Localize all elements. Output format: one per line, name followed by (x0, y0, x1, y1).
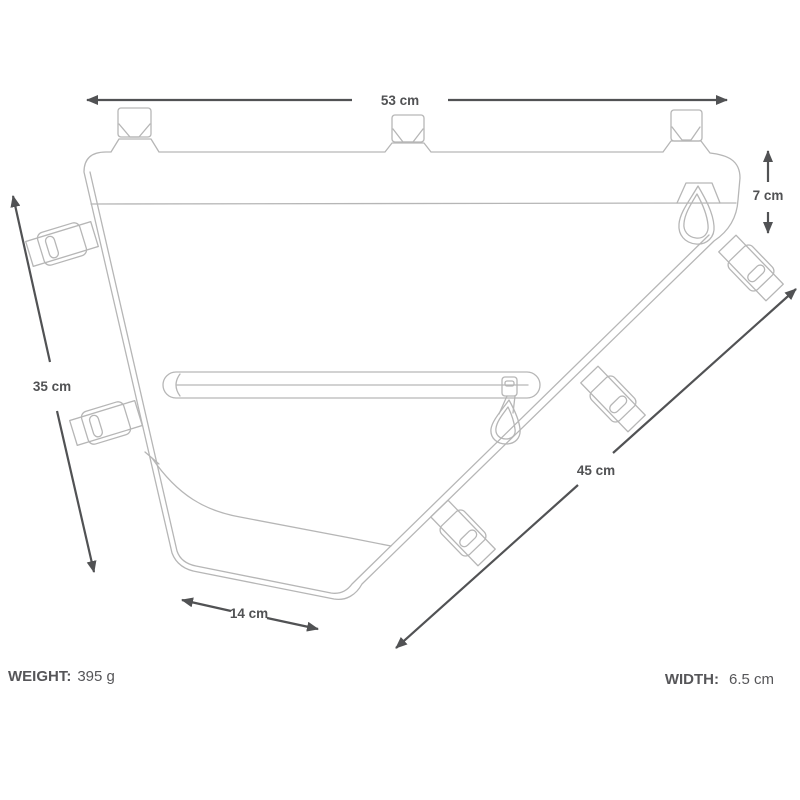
dimension-label-top: 53 cm (381, 93, 419, 108)
zipper-pull-icon (491, 400, 520, 444)
dimension-arrow-diagonal (613, 289, 796, 453)
dimension-label-left: 35 cm (33, 379, 71, 394)
width-value: 6.5 cm (729, 671, 774, 688)
strap-buckle (578, 363, 648, 434)
bag-outline (84, 139, 740, 599)
strap-buckle (716, 232, 786, 303)
weight-label: WEIGHT: (8, 668, 71, 685)
dimension-label-depth: 7 cm (753, 188, 784, 203)
strap-buckle (428, 497, 498, 568)
dimension-labels: 53 cm 35 cm 45 cm 7 cm 14 cm (33, 93, 784, 621)
dimension-label-diagonal: 45 cm (577, 463, 615, 478)
dimension-arrow-bottom (182, 600, 231, 611)
dimension-arrow-left (13, 196, 50, 362)
top-strap-loop (671, 110, 702, 141)
weight-spec: WEIGHT:395 g (8, 668, 115, 685)
diagram-canvas: 53 cm 35 cm 45 cm 7 cm 14 cm WEIGHT:395 … (0, 0, 800, 800)
dimension-label-bottom: 14 cm (230, 606, 268, 621)
top-panel-seam (91, 203, 736, 204)
top-strap-loop (392, 115, 424, 142)
width-spec: WIDTH:6.5 cm (665, 671, 774, 688)
bottom-gusset-seam (152, 458, 391, 546)
strap-buckle (25, 218, 100, 270)
dimension-arrow-left (57, 411, 94, 572)
left-edge-notch (145, 452, 159, 464)
bag-inner-seam (90, 172, 709, 593)
width-label: WIDTH: (665, 671, 719, 688)
dimension-arrow-bottom (267, 618, 318, 629)
strap-buckle (69, 397, 144, 449)
dimension-arrow-diagonal (396, 485, 578, 648)
weight-value: 395 g (77, 668, 115, 685)
main-zipper (163, 372, 540, 414)
bag-artwork (25, 108, 787, 599)
top-strap-loop (118, 108, 151, 137)
